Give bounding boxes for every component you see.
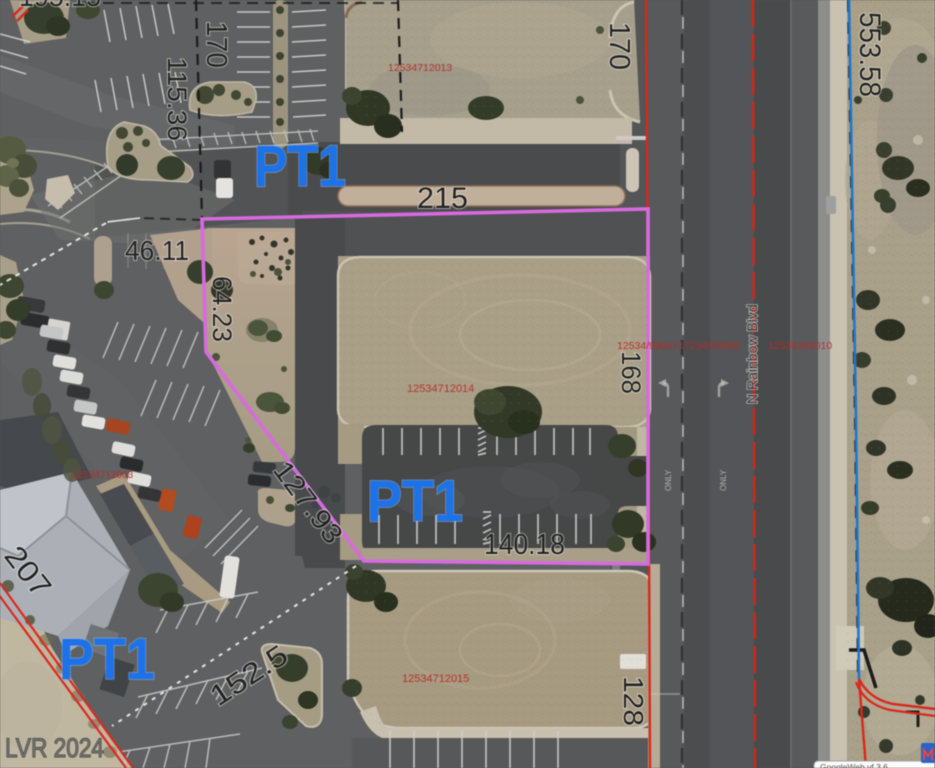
svg-text:12534712015: 12534712015 [402,673,469,685]
svg-text:N Rainbow Blvd: N Rainbow Blvd [744,304,760,404]
svg-text:12534712003: 12534712003 [72,470,134,481]
svg-text:12534712014: 12534712014 [407,383,474,395]
svg-text:140.18: 140.18 [484,529,565,561]
svg-text:12535399010: 12535399010 [768,340,832,352]
svg-text:553.58: 553.58 [853,12,886,97]
svg-text:128: 128 [618,676,649,726]
svg-text:46.11: 46.11 [125,235,189,266]
svg-text:64.23: 64.23 [207,276,237,342]
svg-text:170: 170 [603,22,635,70]
svg-text:PT1: PT1 [254,134,346,199]
svg-text:PT1: PT1 [367,469,463,534]
svg-text:215: 215 [417,182,468,215]
svg-text:12534/9900717234/99008: 12534/9900717234/99008 [617,340,740,352]
svg-text:12534712013: 12534712013 [388,62,452,74]
svg-text:GoogleWeb vf 3.6: GoogleWeb vf 3.6 [820,762,888,768]
svg-text:LVR 2024: LVR 2024 [5,733,104,763]
svg-text:168: 168 [616,351,646,394]
svg-text:195.15: 195.15 [19,0,101,12]
svg-text:170: 170 [200,21,232,68]
svg-text:PT1: PT1 [59,627,155,692]
svg-text:115.36: 115.36 [162,57,192,141]
